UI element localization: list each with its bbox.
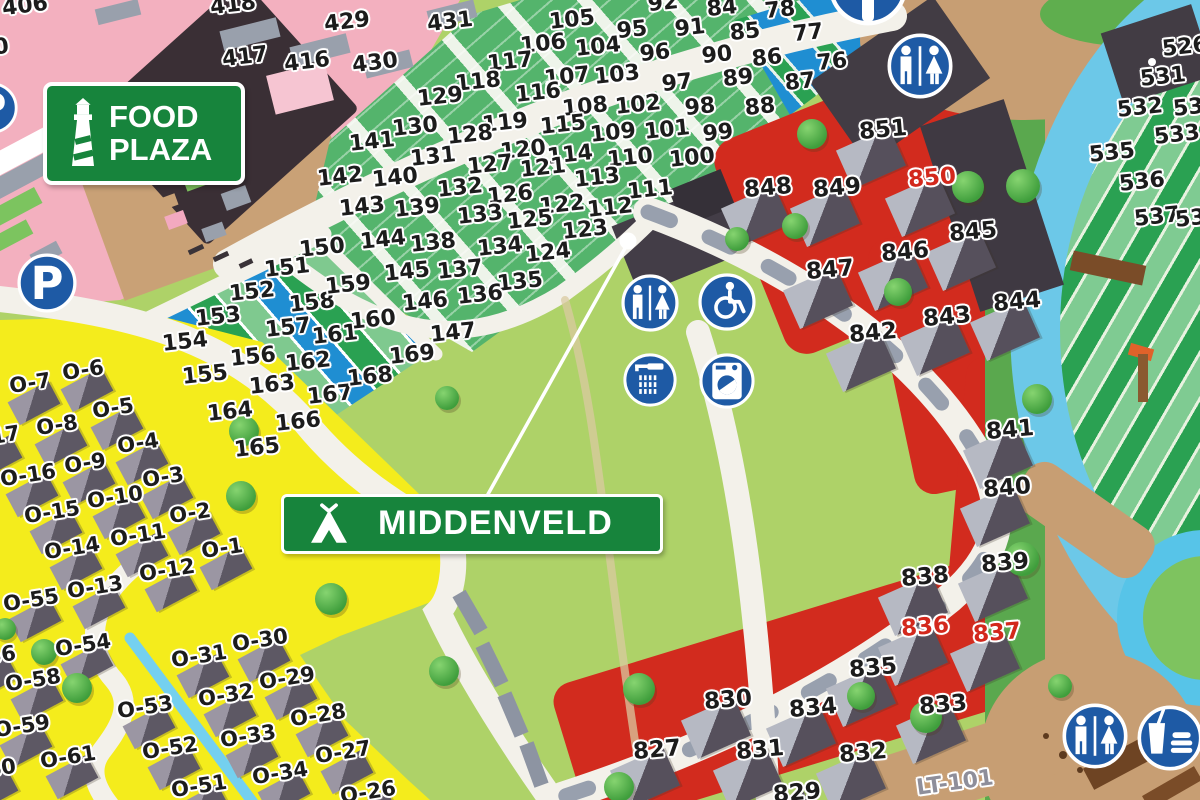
plot-label-139: 139 [393, 193, 441, 223]
plot-label-143: 143 [338, 192, 386, 222]
plot-label-533: 533 [1153, 120, 1200, 150]
plot-label-91: 91 [673, 14, 706, 42]
plot-label-169: 169 [388, 340, 436, 370]
plot-label-102: 102 [614, 90, 662, 120]
plot-label-76: 76 [815, 48, 848, 76]
plot-label-536: 536 [1118, 167, 1166, 197]
tree [1048, 674, 1072, 698]
plot-label-96: 96 [638, 39, 671, 67]
plot-label-146: 146 [401, 287, 449, 317]
plot-label-140: 140 [371, 163, 419, 193]
toilets-glyph [887, 33, 953, 99]
plot-label-137: 137 [436, 255, 484, 285]
plot-label-88: 88 [743, 93, 776, 121]
plot-label-100: 100 [668, 143, 716, 173]
plot-label-851: 851 [858, 115, 908, 145]
wheelchair-icon [698, 273, 756, 331]
tree [315, 583, 347, 615]
parking-glyph: P [0, 82, 18, 134]
plot-label-841: 841 [985, 415, 1035, 445]
plot-label-121: 121 [519, 153, 567, 183]
laundry-glyph [699, 353, 755, 409]
plot-label-833: 833 [918, 690, 968, 720]
tree [1006, 169, 1040, 203]
food-drink-icon [1137, 705, 1200, 771]
toilets-glyph [1062, 703, 1128, 769]
plot-label-87: 87 [783, 68, 816, 96]
plot-label-168: 168 [346, 362, 394, 392]
plot-label-526: 526 [1161, 32, 1200, 62]
plot-label-534: 534 [1172, 92, 1200, 122]
plot-label-77: 77 [791, 19, 824, 47]
plot-label-111: 111 [626, 175, 674, 205]
shower-icon [623, 353, 677, 407]
svg-text:P: P [31, 257, 64, 310]
info-glyph [828, 0, 908, 26]
parking-icon: P [17, 253, 77, 313]
tree [435, 386, 459, 410]
plot-label-138: 138 [409, 228, 457, 258]
plot-label-109: 109 [589, 118, 637, 148]
plot-label-531: 531 [1139, 62, 1187, 92]
tent-icon [306, 499, 352, 549]
plot-label-831: 831 [735, 735, 785, 765]
plot-label-125: 125 [506, 205, 554, 235]
middenveld-callout-dot [620, 233, 637, 250]
tree [623, 673, 655, 705]
plot-label-133: 133 [456, 200, 504, 230]
plot-label-837: 837 [972, 618, 1022, 648]
svg-text:P: P [0, 87, 6, 132]
campsite-map: 4064204184294174164304317877768485868792… [0, 0, 1200, 800]
plot-label-103: 103 [593, 60, 641, 90]
plot-label-842: 842 [848, 318, 898, 348]
plot-label-836: 836 [900, 612, 950, 642]
tree [782, 213, 808, 239]
plot-label-78: 78 [763, 0, 796, 24]
toilets-glyph [621, 274, 679, 332]
plot-label-843: 843 [922, 302, 972, 332]
tree [725, 227, 749, 251]
toilets-icon [887, 33, 953, 99]
tree [429, 656, 459, 686]
plot-label-165: 165 [233, 433, 281, 463]
tree [1022, 384, 1052, 414]
tree [62, 673, 92, 703]
plot-label-532: 532 [1116, 93, 1164, 123]
plot-label-84: 84 [705, 0, 738, 22]
parking-icon: P [0, 82, 18, 134]
parking-glyph: P [17, 253, 77, 313]
plot-label-845: 845 [948, 217, 998, 247]
tree [226, 481, 256, 511]
plot-label-161: 161 [311, 320, 359, 350]
tree [884, 278, 912, 306]
tree [797, 119, 827, 149]
info-icon [828, 0, 908, 26]
wheelchair-glyph [698, 273, 756, 331]
plot-label-115: 115 [539, 110, 587, 140]
plot-label-155: 155 [181, 360, 229, 390]
plot-label-835: 835 [848, 653, 898, 683]
plot-label-166: 166 [274, 407, 322, 437]
plot-label-846: 846 [880, 237, 930, 267]
plot-label-839: 839 [980, 548, 1030, 578]
tree [604, 772, 634, 800]
plot-label-124: 124 [524, 238, 572, 268]
lighthouse-icon [63, 98, 103, 170]
plot-label-89: 89 [721, 64, 754, 92]
plot-label-144: 144 [359, 225, 407, 255]
plot-label-164: 164 [206, 397, 254, 427]
shower-glyph [623, 353, 677, 407]
plot-label-159: 159 [324, 270, 372, 300]
plot-label-90: 90 [700, 41, 733, 69]
laundry-icon [699, 353, 755, 409]
plot-label-847: 847 [805, 255, 855, 285]
plot-label-97: 97 [660, 69, 693, 97]
toilets-icon [621, 274, 679, 332]
plot-label-830: 830 [703, 685, 753, 715]
food-plaza-line2: PLAZA [109, 134, 212, 167]
plot-label-145: 145 [383, 257, 431, 287]
plot-label-163: 163 [248, 370, 296, 400]
plot-label-101: 101 [643, 115, 691, 145]
map-detail [1138, 354, 1148, 402]
plot-label-104: 104 [574, 32, 622, 62]
food-plaza-sign: FOOD PLAZA [43, 82, 245, 185]
plot-label-832: 832 [838, 738, 888, 768]
plot-label-834: 834 [788, 693, 838, 723]
plot-label-156: 156 [229, 342, 277, 372]
tree [847, 682, 875, 710]
plot-label-157: 157 [264, 313, 312, 343]
plot-label-134: 134 [476, 232, 524, 262]
tree [31, 639, 57, 665]
plot-label-113: 113 [573, 163, 621, 193]
plot-label-850: 850 [907, 163, 957, 193]
plot-label-116: 116 [514, 78, 562, 108]
plot-label-142: 142 [316, 162, 364, 192]
middenveld-label: MIDDENVELD [378, 506, 613, 542]
plot-label-130: 130 [391, 112, 439, 142]
plot-label-840: 840 [982, 473, 1032, 503]
plot-label-85: 85 [728, 18, 761, 46]
plot-label-849: 849 [812, 173, 862, 203]
plot-label-136: 136 [456, 280, 504, 310]
plot-label-135: 135 [496, 267, 544, 297]
plot-label-86: 86 [750, 44, 783, 72]
food-drink-glyph [1137, 705, 1200, 771]
plot-label-154: 154 [161, 327, 209, 357]
plot-label-844: 844 [992, 287, 1042, 317]
plot-label-147: 147 [429, 318, 477, 348]
plot-label-129: 129 [416, 82, 464, 112]
food-plaza-line1: FOOD [109, 101, 212, 134]
middenveld-sign: MIDDENVELD [281, 494, 663, 554]
plot-label-132: 132 [436, 173, 484, 203]
plot-label-141: 141 [348, 127, 396, 157]
toilets-icon [1062, 703, 1128, 769]
plot-label-535: 535 [1088, 138, 1136, 168]
map-dot [1043, 733, 1049, 739]
plot-label-838: 838 [900, 562, 950, 592]
plot-label-827: 827 [632, 735, 682, 765]
plot-label-538: 538 [1174, 203, 1200, 233]
plot-label-829: 829 [772, 778, 822, 800]
plot-label-848: 848 [743, 173, 793, 203]
